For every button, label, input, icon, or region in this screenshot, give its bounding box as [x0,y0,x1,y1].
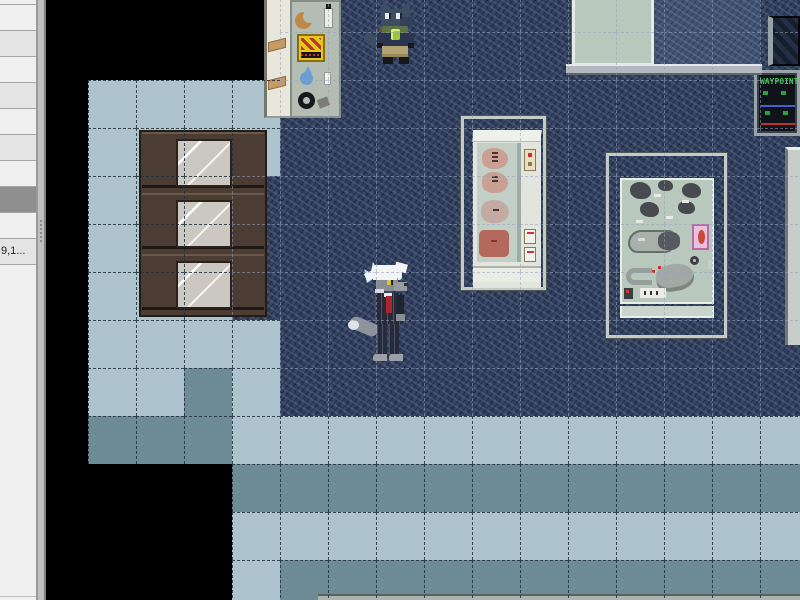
map-tile-floor-light[interactable] [232,368,280,416]
chipart-part [301,38,321,50]
map-tile-floor-light[interactable] [616,416,664,464]
map-tile-floor-light[interactable] [568,512,616,560]
map-tile-void-black[interactable] [46,32,88,80]
map-tile-carpet-dark-navy[interactable] [568,368,616,416]
bstrip-part [620,306,714,318]
counter-frame-bar [566,64,762,75]
map-tile-void-black[interactable] [88,0,136,32]
map-tile-void-black[interactable] [46,272,88,320]
map-tile-carpet-dark-navy[interactable] [664,368,712,416]
map-tile-void-black[interactable] [46,512,88,560]
mred-part [626,290,629,293]
wlab-part [682,200,689,203]
spill-part [708,260,712,269]
map-tile-void-black[interactable] [46,368,88,416]
map-tile-void-black[interactable] [184,32,232,80]
map-tile-carpet-dark-navy[interactable] [424,320,472,368]
map-tile-void-black[interactable] [46,464,88,512]
tick-part [492,152,498,154]
bone-hook-item [626,268,652,285]
map-tile-carpet-dark-navy[interactable] [280,368,328,416]
labelcol-part [523,143,538,262]
wlab-part [638,238,645,241]
map-tile-carpet-dark-navy[interactable] [376,80,424,128]
waypoint-sign-label: WAYPOINT [760,77,800,86]
brown-cabinet[interactable] [139,130,267,317]
bottom-edge-case[interactable] [318,594,800,600]
ham-item [479,230,509,257]
map-tile-carpet-dark-navy[interactable] [712,80,760,128]
map-tile-floor-light[interactable] [712,416,760,464]
clump-part [658,232,680,250]
tick-part [492,176,498,178]
map-list-item[interactable] [0,186,36,212]
meat-item [481,200,509,223]
inner-part [477,143,521,262]
map-tile-void-black[interactable] [184,560,232,600]
map-tile-floor-light[interactable] [664,416,712,464]
map-tile-void-black[interactable] [46,176,88,224]
map-tile-floor-light[interactable] [424,416,472,464]
map-tile-floor-teal[interactable] [424,464,472,512]
croi-bite-part [303,10,316,23]
map-tile-floor-teal[interactable] [616,464,664,512]
map-tile-void-black[interactable] [46,80,88,128]
player-wolf-suit[interactable] [360,262,414,362]
label-strip [640,288,666,298]
handr-part [408,43,414,48]
map-tile-carpet-dark-navy[interactable] [280,272,328,320]
map-canvas[interactable]: WAYPOINT [46,0,800,600]
armr-part [397,295,404,315]
map-tile-floor-light[interactable] [472,416,520,464]
map-tile-carpet-dark-navy[interactable] [520,368,568,416]
map-tile-carpet-dark-navy[interactable] [472,368,520,416]
map-tile-floor-teal[interactable] [232,464,280,512]
rock-item [682,183,701,198]
map-tile-floor-teal[interactable] [184,368,232,416]
list-bottom-line [0,596,36,597]
green-pixel-icon [763,91,768,95]
price-card [524,149,536,171]
pretzel-icon [298,92,315,109]
map-tile-floor-light[interactable] [88,128,136,176]
blue-line [761,105,795,107]
map-tile-floor-teal[interactable] [376,464,424,512]
nose-part [404,283,407,286]
tick-part [492,156,498,158]
map-tile-void-black[interactable] [46,560,88,600]
map-tile-carpet-dark-navy[interactable] [328,368,376,416]
inbox-part [620,178,714,304]
map-tile-floor-light[interactable] [232,320,280,368]
map-tile-void-black[interactable] [184,512,232,560]
map-tile-carpet-dark-navy[interactable] [280,224,328,272]
map-tile-floor-teal[interactable] [184,416,232,464]
map-tile-carpet-dark-navy[interactable] [760,368,800,416]
map-tile-carpet-dark-navy[interactable] [664,80,712,128]
top-display-case[interactable] [572,0,654,66]
map-tile-floor-teal[interactable] [472,464,520,512]
map-tile-floor-teal[interactable] [520,464,568,512]
snack-shelf[interactable] [264,0,341,118]
shoel-part [373,354,387,361]
waypoint-sign[interactable]: WAYPOINT [754,70,800,136]
legl-part [377,324,387,354]
mred-part [658,266,661,269]
rock-item [640,202,659,217]
map-tile-void-black[interactable] [88,464,136,512]
map-tile-floor-light[interactable] [280,416,328,464]
map-tile-floor-light[interactable] [520,416,568,464]
eyel-part [385,13,391,19]
map-tile-floor-light[interactable] [184,80,232,128]
map-tile-floor-light[interactable] [88,176,136,224]
museum-display-case[interactable] [606,153,727,338]
red-tie [386,296,392,313]
map-tile-floor-light[interactable] [760,512,800,560]
map-tile-carpet-dark-navy[interactable] [280,320,328,368]
map-tile-carpet-dark-navy[interactable] [616,80,664,128]
dark-screen-kiosk[interactable] [768,16,800,66]
map-tile-floor-light[interactable] [280,512,328,560]
pill-icon [324,72,331,85]
map-tile-carpet-dark-navy[interactable] [520,32,568,80]
map-tile-floor-teal[interactable] [280,464,328,512]
meat-item [482,172,508,193]
tick-part [492,180,498,182]
tick-part [492,160,498,162]
meat-item [482,148,508,169]
map-list-item[interactable] [0,56,36,82]
map-tile-carpet-dark-navy[interactable] [424,32,472,80]
water-drop-icon [300,72,313,85]
map-tile-floor-light[interactable] [88,224,136,272]
map-tile-floor-light[interactable] [424,512,472,560]
map-tile-floor-light[interactable] [136,368,184,416]
map-list-item[interactable]: 9,1... [0,238,36,264]
tick-part [491,240,497,242]
pinkoval-part [698,230,705,244]
map-tile-carpet-dark-navy[interactable] [328,176,376,224]
map-tile-carpet-dark-navy[interactable] [472,0,520,32]
splitter-grip-icon [40,220,42,242]
map-tile-void-black[interactable] [88,512,136,560]
map-tile-floor-light[interactable] [88,80,136,128]
map-tile-floor-light[interactable] [136,80,184,128]
map-tile-void-black[interactable] [184,0,232,32]
map-list-item[interactable] [0,30,36,56]
dark-item [624,288,633,299]
wlab-part [666,216,673,219]
map-tile-void-black[interactable] [88,32,136,80]
map-tile-carpet-dark-navy[interactable] [280,128,328,176]
map-tile-carpet-dark-navy[interactable] [376,176,424,224]
map-tile-void-black[interactable] [136,32,184,80]
map-tile-carpet-dark-navy[interactable] [328,128,376,176]
eyer-part [396,13,402,19]
map-tile-void-black[interactable] [136,0,184,32]
map-tile-floor-teal[interactable] [568,464,616,512]
map-tile-void-black[interactable] [46,0,88,32]
map-list-item[interactable] [0,264,36,290]
map-tile-floor-light[interactable] [88,320,136,368]
map-tile-carpet-dark-navy[interactable] [616,368,664,416]
map-tile-floor-light[interactable] [232,560,280,600]
glowing-gem-icon [391,29,400,40]
bootl-part [383,57,393,64]
rock-item [658,180,673,191]
map-tile-floor-light[interactable] [328,512,376,560]
map-tile-void-black[interactable] [88,560,136,600]
topface-part [472,130,542,142]
map-tile-floor-light[interactable] [520,512,568,560]
rdot-part [528,153,532,157]
bang-part [373,273,397,280]
meat-display-fridge[interactable] [461,116,546,290]
shoer-part [389,354,403,361]
map-list-item[interactable] [0,212,36,238]
price-card [524,229,536,244]
map-tile-void-black[interactable] [46,224,88,272]
cabunit-part [142,132,264,188]
map-tile-void-black[interactable] [136,560,184,600]
cabglass-part [176,139,232,187]
map-tile-carpet-dark-navy[interactable] [376,128,424,176]
map-tile-carpet-dark-navy[interactable] [712,368,760,416]
mred-part [652,270,655,273]
map-tile-floor-light[interactable] [88,368,136,416]
map-editor-window: 9,1... WAYPOINT [0,0,800,600]
ring-item [690,256,699,265]
map-tile-void-black[interactable] [46,320,88,368]
map-tile-floor-light[interactable] [712,512,760,560]
map-tile-floor-teal[interactable] [88,416,136,464]
map-tile-void-black[interactable] [136,464,184,512]
map-tile-floor-light[interactable] [376,416,424,464]
map-tile-void-black[interactable] [184,464,232,512]
map-tile-carpet-dark-navy[interactable] [424,368,472,416]
map-tile-floor-light[interactable] [232,416,280,464]
red-line [761,123,795,125]
shorts-part [382,46,408,57]
map-tile-floor-light[interactable] [760,416,800,464]
rock-item [630,182,651,199]
map-tile-floor-teal[interactable] [328,464,376,512]
map-tile-void-black[interactable] [46,416,88,464]
map-tile-floor-teal[interactable] [760,464,800,512]
map-tile-carpet-dark-navy[interactable] [520,320,568,368]
unit-part [473,130,541,288]
map-tile-floor-light[interactable] [232,512,280,560]
right-edge-case[interactable] [785,147,800,345]
tick-part [493,209,499,211]
map-tile-void-black[interactable] [136,512,184,560]
map-tile-floor-teal[interactable] [664,464,712,512]
npc-wolf-scarf[interactable] [372,0,424,64]
map-tile-floor-light[interactable] [184,320,232,368]
map-list-item[interactable] [0,134,36,160]
hand-part [396,314,405,321]
map-tile-floor-light[interactable] [88,272,136,320]
map-tile-carpet-dark-navy[interactable] [280,176,328,224]
rdot-part [527,232,534,234]
map-list-panel: 9,1... [0,0,36,600]
cabunit-part [142,193,264,249]
map-list-item[interactable] [0,82,36,108]
map-tile-floor-teal[interactable] [136,416,184,464]
map-list-item[interactable] [0,108,36,134]
map-tile-carpet-dark-navy[interactable] [472,320,520,368]
price-card [524,247,536,262]
chips-bag-icon [297,34,325,62]
map-tile-carpet-dark-navy[interactable] [568,80,616,128]
lunit-part [264,0,290,118]
map-list-item[interactable] [0,160,36,186]
wlab-part [654,194,661,197]
green-pixel-icon [781,91,786,95]
rdot-part [528,162,532,166]
green-pixel-icon [765,111,770,115]
wlab-part [636,220,643,223]
map-tile-floor-light[interactable] [136,320,184,368]
map-tile-carpet-dark-navy[interactable] [376,368,424,416]
map-tile-floor-light[interactable] [472,512,520,560]
map-tile-floor-light[interactable] [568,416,616,464]
tailtip-part [348,320,359,330]
bootr-part [399,57,409,64]
map-tile-floor-light[interactable] [376,512,424,560]
map-tile-floor-light[interactable] [328,416,376,464]
cabglass-part [176,261,232,309]
map-tile-carpet-dark-navy[interactable] [424,0,472,32]
bottle-icon [324,8,333,28]
base-part [473,266,541,282]
legr-part [389,324,399,354]
map-tile-carpet-dark-navy[interactable] [472,32,520,80]
map-tile-floor-teal[interactable] [712,464,760,512]
map-tile-floor-light[interactable] [664,512,712,560]
counter-carpet-area [654,0,760,66]
cap-part [326,4,331,9]
map-tile-void-black[interactable] [46,128,88,176]
map-list-item[interactable] [0,4,36,30]
green-pixel-icon [783,111,788,115]
cabglass-part [176,200,232,248]
map-tile-carpet-dark-navy[interactable] [520,0,568,32]
pink-display-card [692,224,709,250]
panel-splitter[interactable] [36,0,46,600]
chiplabel-part [301,52,321,58]
rdot-part [527,251,534,253]
cabunit-part [142,254,264,310]
map-tile-floor-light[interactable] [616,512,664,560]
